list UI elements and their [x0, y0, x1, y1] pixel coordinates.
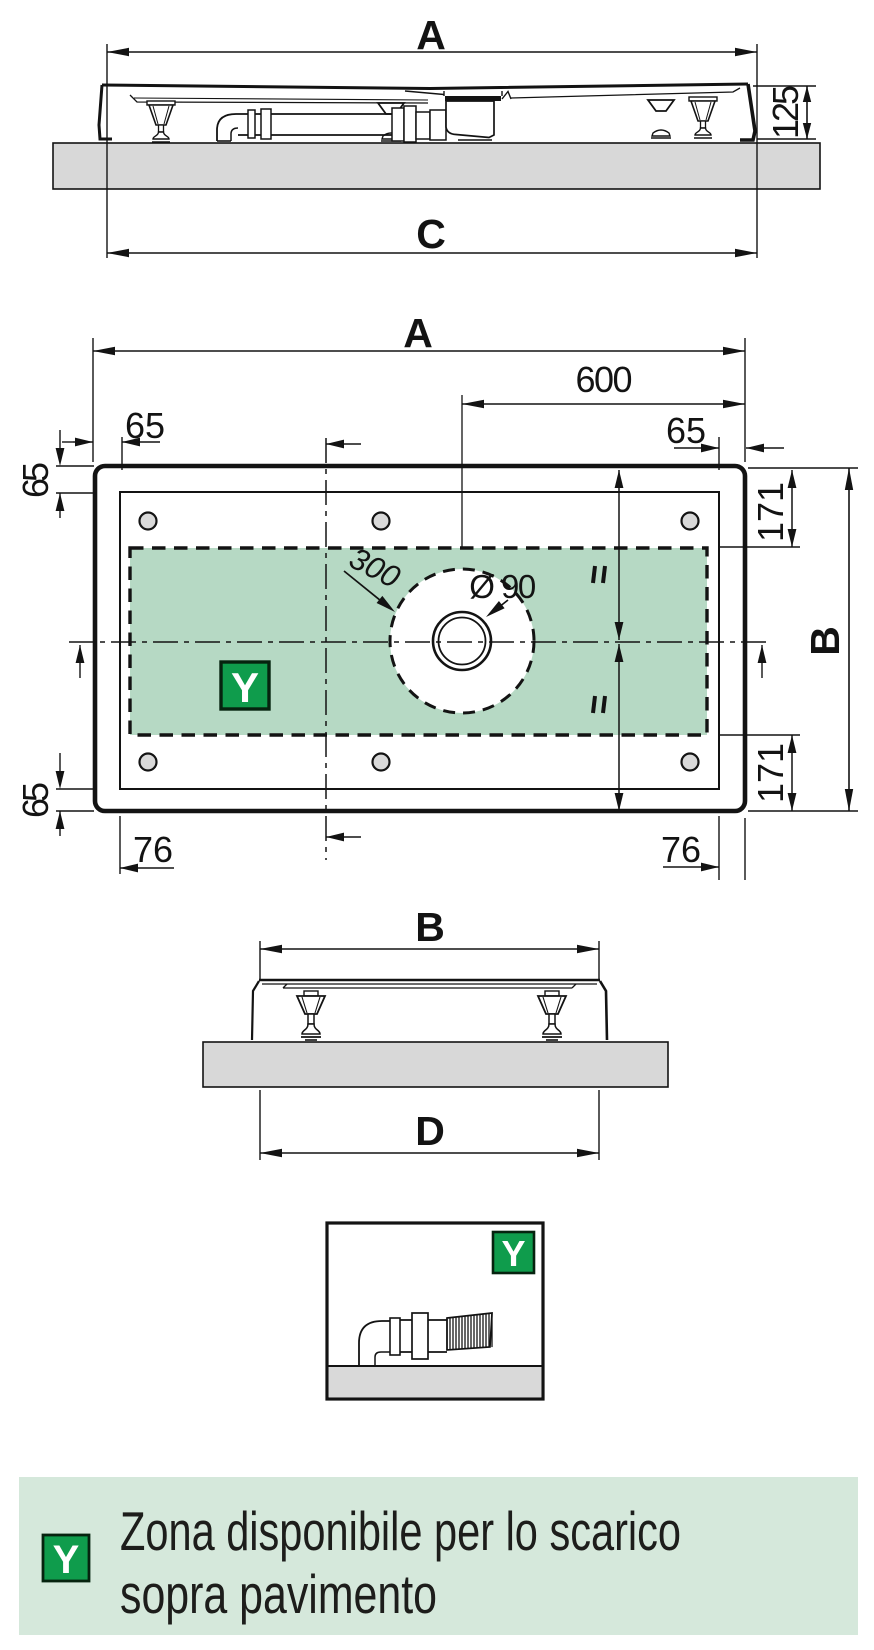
svg-text:65: 65	[666, 410, 706, 451]
svg-text:65: 65	[125, 405, 165, 446]
svg-text:C: C	[416, 211, 446, 257]
svg-text:Ø 90: Ø 90	[469, 568, 536, 605]
svg-text:171: 171	[750, 743, 791, 803]
svg-text:A: A	[416, 12, 446, 58]
svg-text:A: A	[403, 310, 433, 356]
svg-text:D: D	[415, 1108, 445, 1154]
svg-text:171: 171	[750, 482, 791, 542]
svg-text:Y: Y	[501, 1233, 525, 1274]
svg-text:B: B	[415, 904, 445, 950]
svg-text:600: 600	[576, 359, 633, 400]
svg-text:65: 65	[15, 462, 56, 498]
svg-text:65: 65	[15, 782, 56, 818]
svg-text:Y: Y	[53, 1538, 80, 1582]
svg-text:Zona disponibile per lo scaric: Zona disponibile per lo scarico	[120, 1500, 681, 1562]
svg-text:76: 76	[133, 829, 173, 870]
svg-text:125: 125	[765, 85, 806, 139]
svg-text:sopra pavimento: sopra pavimento	[120, 1563, 437, 1625]
svg-text:Y: Y	[231, 664, 259, 711]
svg-text:76: 76	[661, 829, 701, 870]
svg-text:B: B	[802, 626, 848, 656]
